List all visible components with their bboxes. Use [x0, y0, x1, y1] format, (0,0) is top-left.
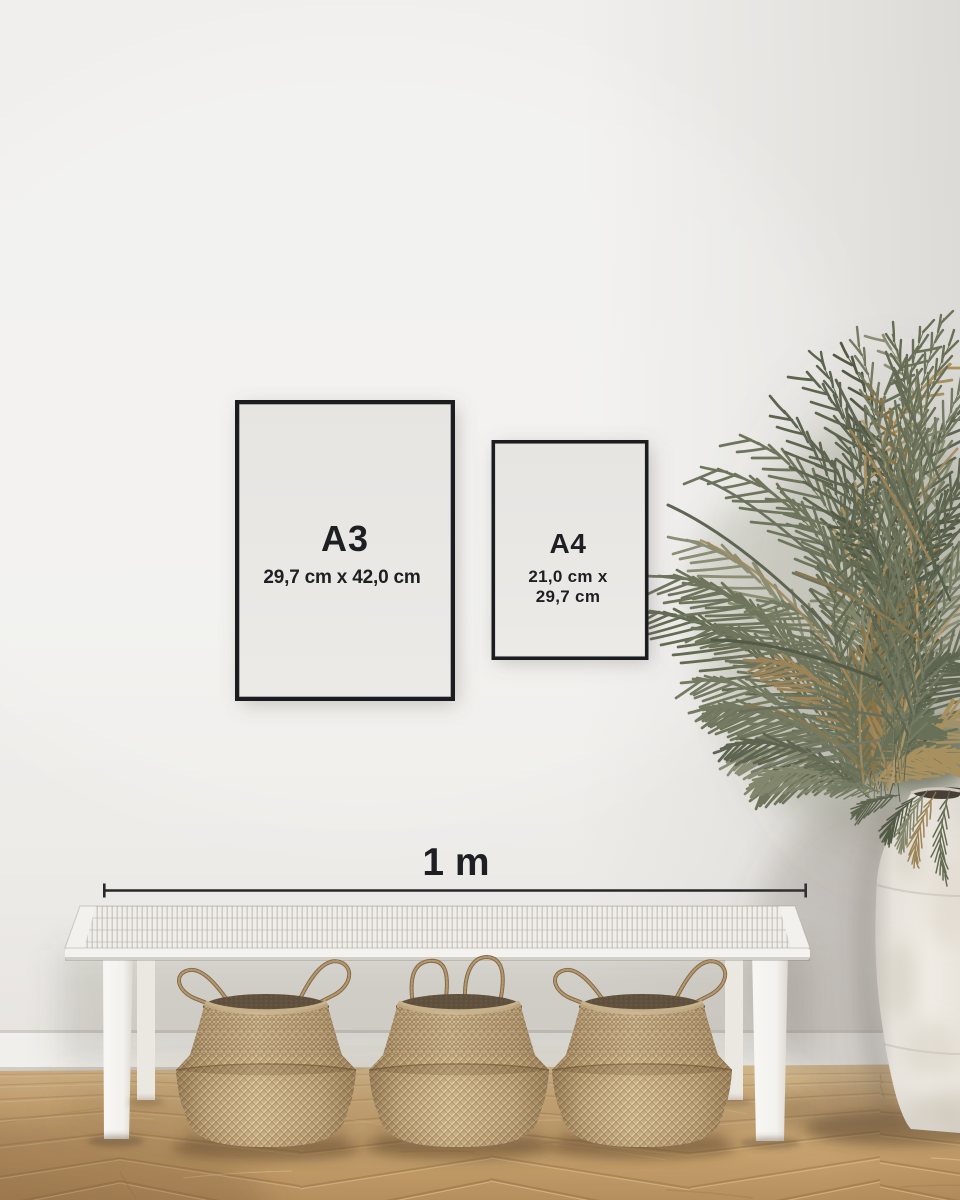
svg-text:A3: A3 — [321, 518, 369, 559]
svg-text:29,7 cm: 29,7 cm — [536, 587, 600, 606]
svg-text:29,7 cm x 42,0 cm: 29,7 cm x 42,0 cm — [263, 567, 420, 588]
svg-text:21,0 cm x: 21,0 cm x — [528, 567, 608, 586]
svg-text:A4: A4 — [550, 528, 587, 559]
svg-text:1 m: 1 m — [422, 841, 489, 884]
